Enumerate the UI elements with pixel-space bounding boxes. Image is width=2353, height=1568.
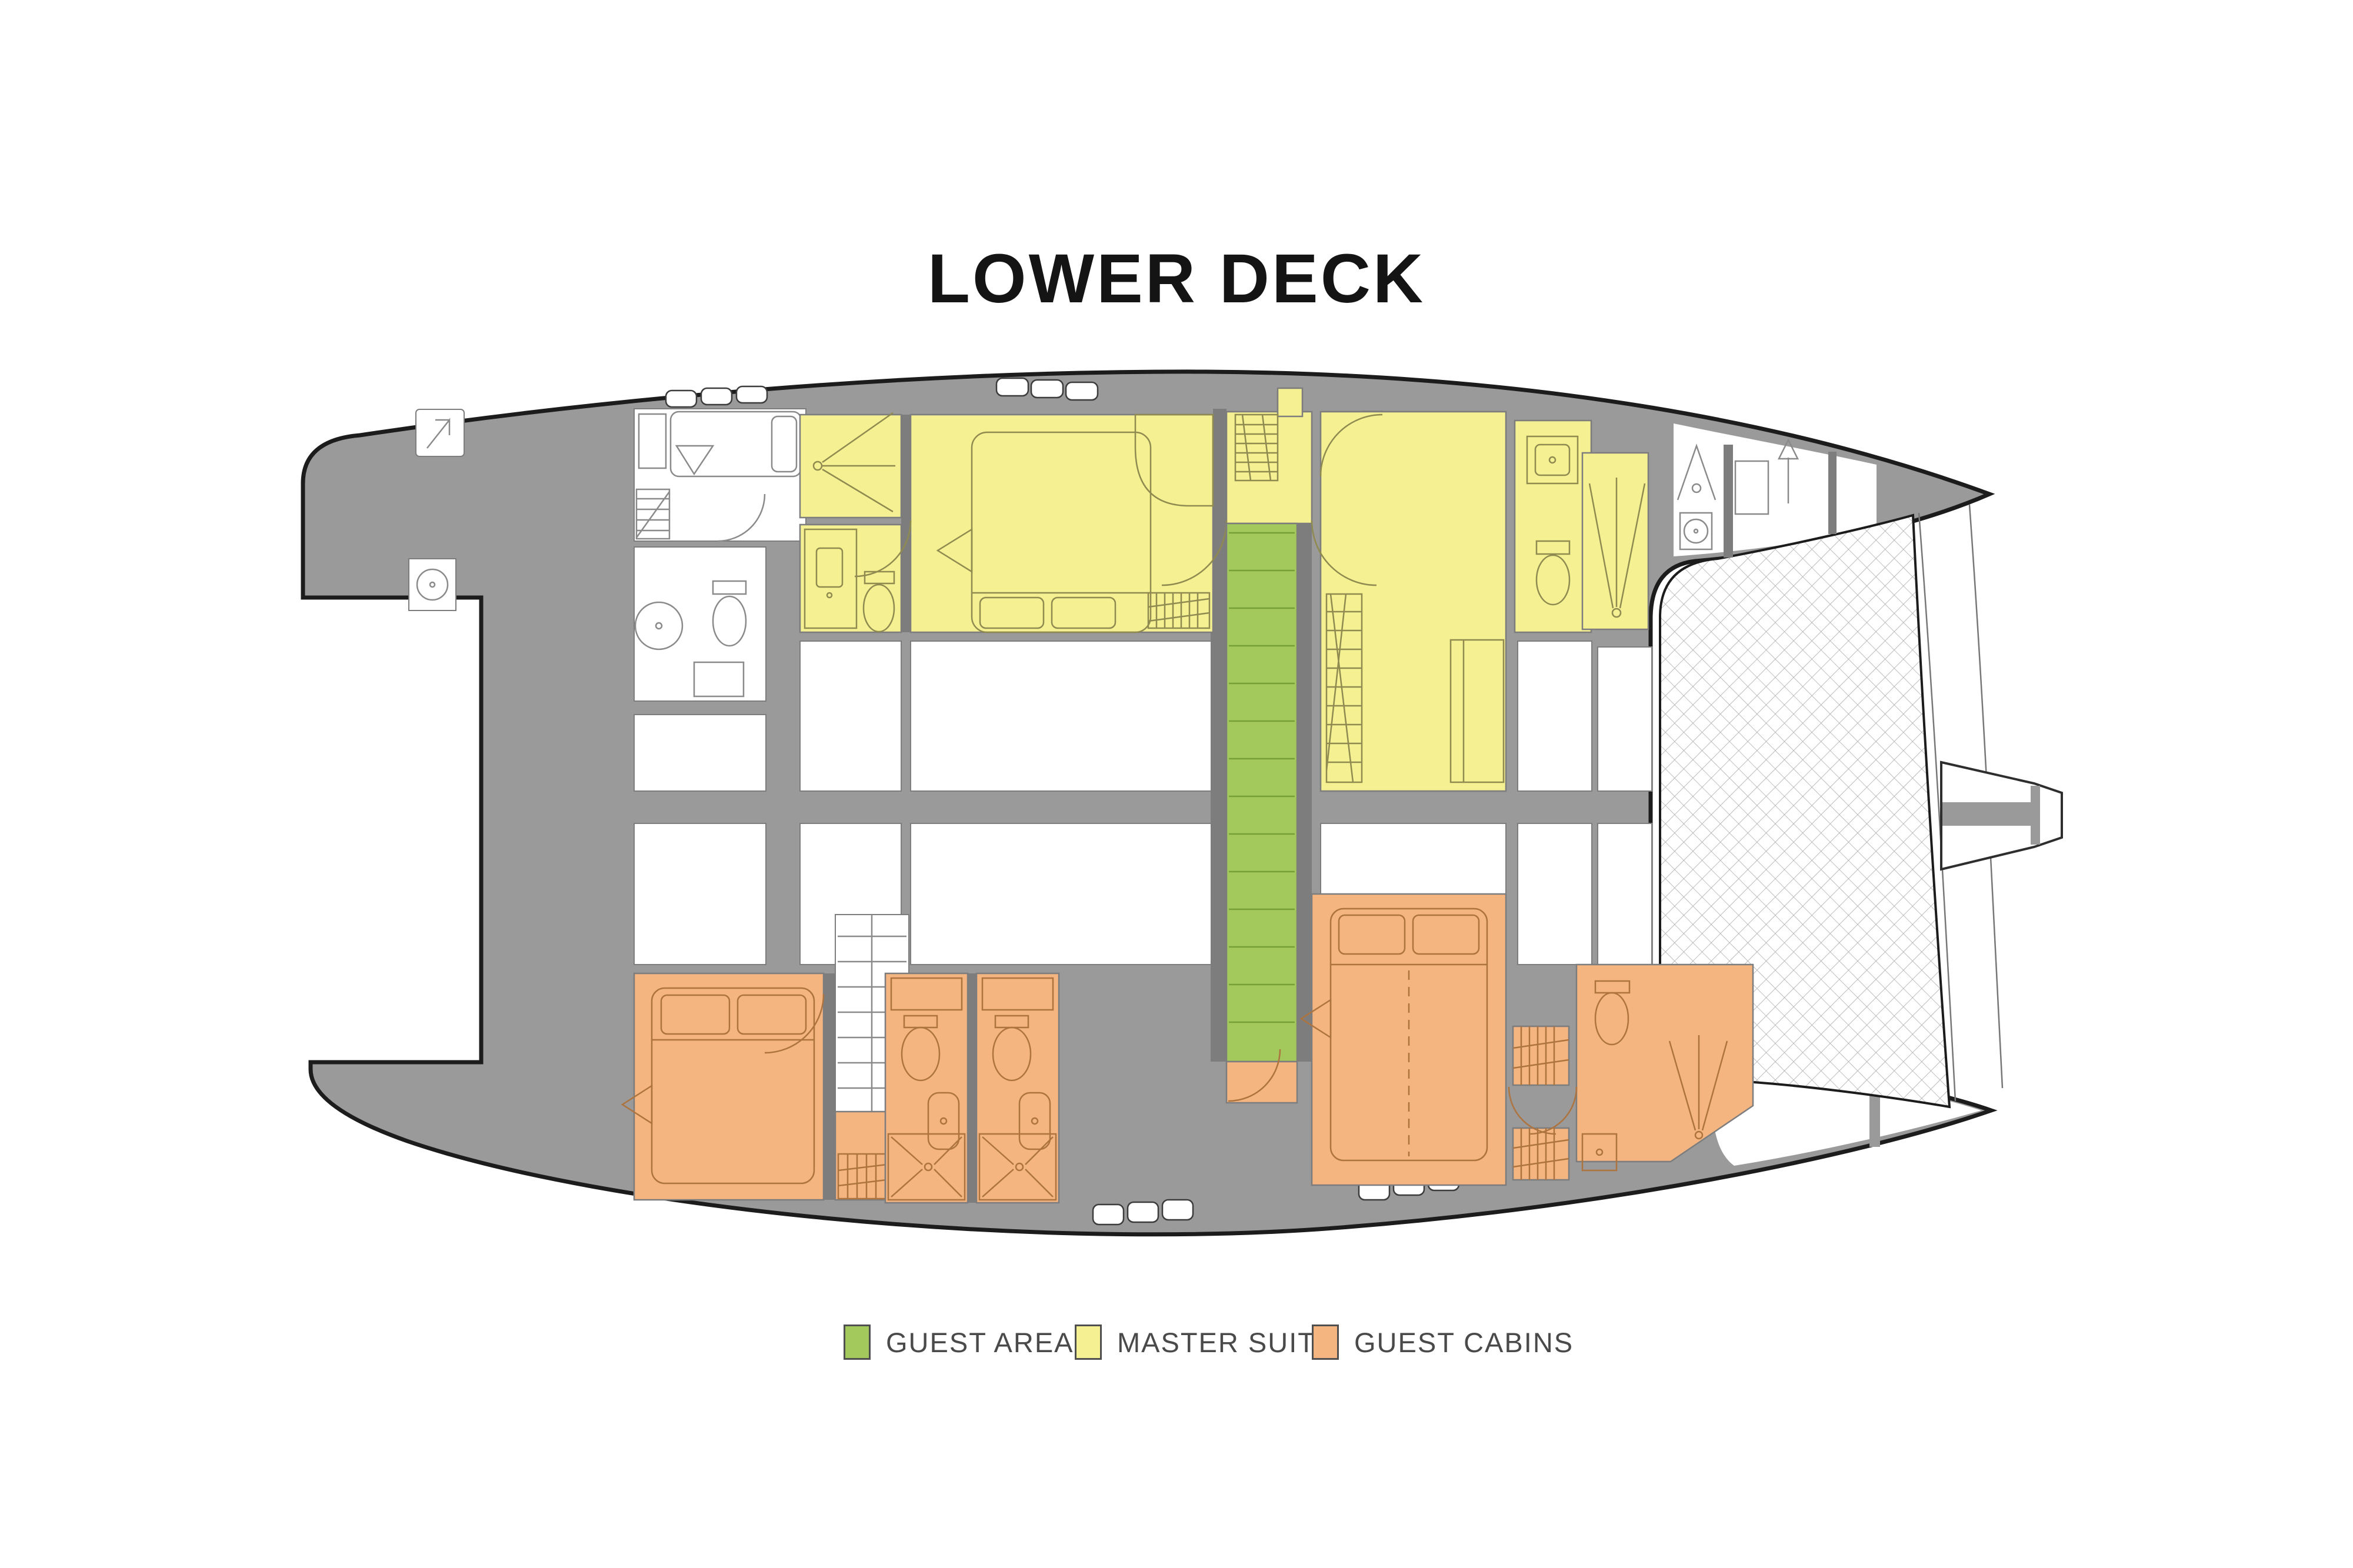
master-suite-label: MASTER SUITE (1117, 1326, 1335, 1359)
guest-areas-label: GUEST AREAS (886, 1326, 1094, 1359)
legend-item-guest-areas: GUEST AREAS (844, 1325, 1094, 1360)
guest-cabins-label: GUEST CABINS (1354, 1326, 1574, 1359)
guest-bathroom-1 (885, 973, 968, 1203)
guest-areas-staircase (1227, 523, 1297, 1062)
suite-office (1321, 412, 1506, 791)
legend-item-master-suite: MASTER SUITE (1075, 1325, 1335, 1360)
guest-bathroom-2 (976, 973, 1059, 1203)
master-suite-swatch (1075, 1325, 1102, 1360)
master-bedroom (911, 415, 1213, 632)
stair-landing (1227, 1062, 1297, 1103)
guest-cabins-swatch (1312, 1325, 1339, 1360)
suite-toilet-room (1515, 421, 1591, 632)
equipment-box (409, 559, 456, 610)
guest-areas-swatch (844, 1325, 871, 1360)
legend-item-guest-cabins: GUEST CABINS (1312, 1325, 1574, 1360)
companionway-notch (1278, 388, 1302, 416)
suite-shower-room (1582, 453, 1648, 629)
floor-plan-page: LOWER DECK (0, 0, 2353, 1568)
master-vanity-room (800, 525, 901, 632)
crew-ladder (636, 489, 669, 539)
bowsprit (1941, 762, 2062, 869)
